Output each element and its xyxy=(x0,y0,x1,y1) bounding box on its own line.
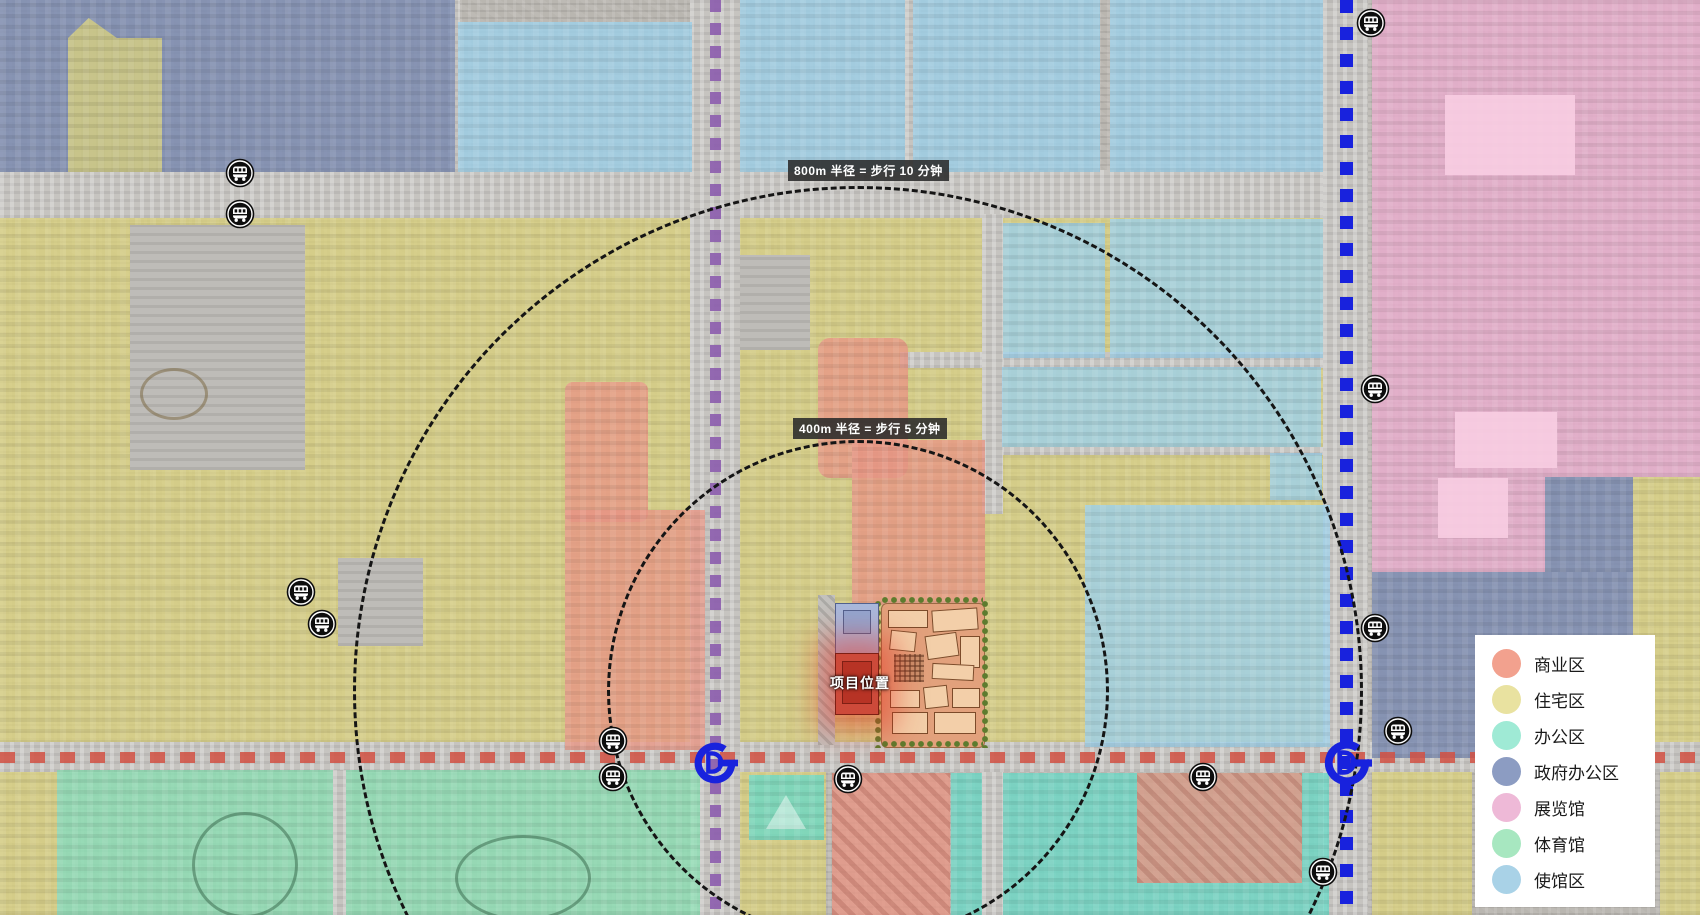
site-analysis-map: 800m 半径 = 步行 10 分钟 400m 半径 = 步行 5 分钟 项目位… xyxy=(0,0,1700,915)
zone-embassy-2 xyxy=(740,0,905,172)
unzoned-block-school xyxy=(130,225,305,470)
bus-stop-icon xyxy=(307,609,337,639)
legend-item-6: 使馆区 xyxy=(1492,865,1655,894)
legend-item-label: 住宅区 xyxy=(1534,687,1585,712)
zone-embassy-1 xyxy=(458,22,692,172)
legend-color-dot xyxy=(1492,793,1521,822)
legend-color-dot xyxy=(1492,829,1521,858)
zone-embassy-3 xyxy=(913,0,1100,172)
legend-item-3: 政府办公区 xyxy=(1492,757,1655,786)
bus-stop-icon xyxy=(598,762,628,792)
road-horizontal-north xyxy=(0,170,1345,218)
bus-stop-icon xyxy=(1308,857,1338,887)
zone-residential-left-bottom xyxy=(0,765,57,915)
exhibition-hall-building-1 xyxy=(1445,95,1575,175)
bus-stop-icon xyxy=(1360,374,1390,404)
bus-stop-icon xyxy=(1360,613,1390,643)
road-vertical-green-gap xyxy=(333,770,346,915)
legend-color-dot xyxy=(1492,685,1521,714)
legend-item-5: 体育馆 xyxy=(1492,829,1655,858)
site-plaza xyxy=(894,654,924,682)
legend-item-1: 住宅区 xyxy=(1492,685,1655,714)
bus-stop-icon xyxy=(833,764,863,794)
legend-item-label: 使馆区 xyxy=(1534,867,1585,892)
legend-item-label: 办公区 xyxy=(1534,723,1585,748)
zone-residential-right-2 xyxy=(1660,765,1700,915)
legend-item-label: 政府办公区 xyxy=(1534,759,1619,784)
metro-station-icon xyxy=(692,740,738,786)
legend-color-dot xyxy=(1492,865,1521,894)
zone-residential-pentagon xyxy=(68,18,162,172)
zone-embassy-4 xyxy=(1110,0,1323,172)
bus-stop-icon xyxy=(286,577,316,607)
running-track xyxy=(140,368,208,420)
stadium-1 xyxy=(192,812,298,915)
legend-color-dot xyxy=(1492,721,1521,750)
legend-item-2: 办公区 xyxy=(1492,721,1655,750)
bus-stop-icon xyxy=(225,199,255,229)
zone-residential-right-3 xyxy=(1372,765,1472,915)
radius-800m-label: 800m 半径 = 步行 10 分钟 xyxy=(788,160,949,181)
legend-color-dot xyxy=(1492,649,1521,678)
site-blue-building xyxy=(835,603,879,654)
bus-stop-icon xyxy=(1188,762,1218,792)
metro-station-icon xyxy=(1322,738,1372,788)
bus-stop-icon xyxy=(598,726,628,756)
trees-right xyxy=(981,600,990,748)
exhibition-hall-building-2 xyxy=(1455,412,1557,468)
radius-400m-label: 400m 半径 = 步行 5 分钟 xyxy=(793,418,947,439)
legend-item-label: 展览馆 xyxy=(1534,795,1585,820)
legend-item-4: 展览馆 xyxy=(1492,793,1655,822)
zone-exhibition-main xyxy=(1372,0,1700,477)
bus-stop-icon xyxy=(1356,8,1386,38)
legend-color-dot xyxy=(1492,757,1521,786)
bus-stop-icon xyxy=(225,158,255,188)
legend-item-label: 商业区 xyxy=(1534,651,1585,676)
exhibition-hall-building-3 xyxy=(1438,478,1508,538)
legend-item-label: 体育馆 xyxy=(1534,831,1585,856)
trees-bottom xyxy=(881,740,983,749)
bus-stop-icon xyxy=(1383,716,1413,746)
legend-item-0: 商业区 xyxy=(1492,649,1655,678)
project-location-label: 项目位置 xyxy=(830,673,890,693)
zone-gov-office-right-2 xyxy=(1545,477,1633,572)
legend-panel: 商业区住宅区办公区政府办公区展览馆体育馆使馆区 xyxy=(1475,635,1655,907)
trees-top xyxy=(881,596,983,605)
site-master-plan xyxy=(881,603,985,748)
